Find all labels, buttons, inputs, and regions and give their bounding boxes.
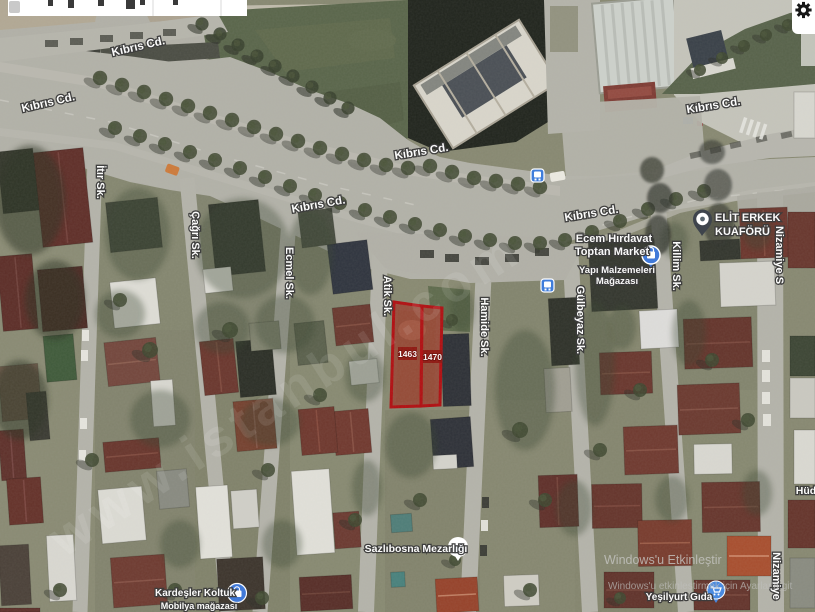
svg-text:KUAFÖRÜ: KUAFÖRÜ — [715, 225, 770, 238]
svg-text:Ecem Hırdavat: Ecem Hırdavat — [576, 233, 653, 245]
svg-text:Toptan Market: Toptan Market — [575, 246, 650, 258]
svg-text:Yapı Malzemeleri: Yapı Malzemeleri — [579, 265, 655, 276]
svg-text:ELİT ERKEK: ELİT ERKEK — [715, 211, 780, 224]
svg-text:Nizamiye: Nizamiye — [770, 552, 782, 600]
svg-text:Ecmel Sk.: Ecmel Sk. — [283, 247, 295, 299]
svg-text:Nizamiye S: Nizamiye S — [773, 226, 785, 284]
svg-text:Sazlıbosna Mezarlığı: Sazlıbosna Mezarlığı — [365, 543, 468, 555]
svg-text:Yeşilyurt Gıda: Yeşilyurt Gıda — [646, 592, 713, 603]
svg-text:Çağrı Sk.: Çağrı Sk. — [189, 211, 201, 259]
svg-text:Kardeşler Koltuk: Kardeşler Koltuk — [155, 588, 235, 599]
svg-text:Hamide Sk.: Hamide Sk. — [478, 297, 490, 356]
svg-text:Windows'u Etkinleştir: Windows'u Etkinleştir — [604, 553, 722, 567]
svg-text:Hüd: Hüd — [796, 485, 815, 497]
svg-text:İtır Sk.: İtır Sk. — [94, 165, 107, 199]
svg-text:Atik Sk.: Atik Sk. — [381, 276, 393, 316]
svg-text:Mağazası: Mağazası — [596, 276, 638, 287]
svg-text:Gülbeyaz Sk.: Gülbeyaz Sk. — [574, 286, 586, 354]
svg-text:Windows'u etkinleştirmek için: Windows'u etkinleştirmek için Ayarlar'a … — [608, 581, 792, 592]
svg-text:Mobilya mağazası: Mobilya mağazası — [161, 601, 238, 611]
svg-text:Killim Sk.: Killim Sk. — [670, 241, 682, 291]
